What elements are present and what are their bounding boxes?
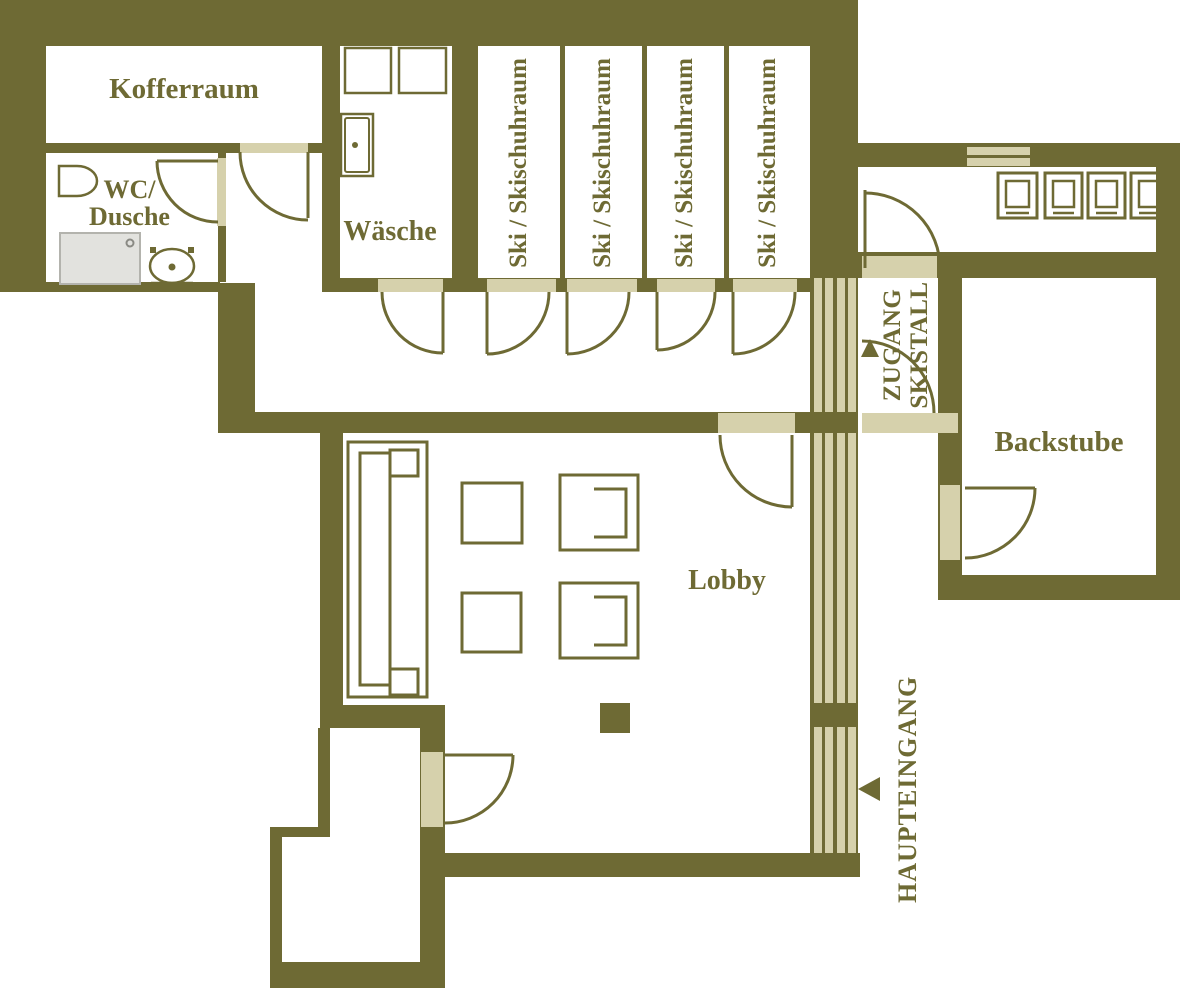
wall-ski-divider-1 — [560, 46, 565, 278]
sofa-icon — [348, 442, 427, 697]
laundry-sink-icon — [341, 114, 373, 176]
coffee-table-icon — [462, 593, 521, 652]
door-smallroom — [445, 755, 513, 823]
label-waesche: Wäsche — [315, 217, 465, 246]
sill-waesche — [378, 279, 443, 292]
label-wc-line1: WC/ — [57, 176, 202, 203]
sill-smallroom — [421, 752, 443, 827]
window-icon — [967, 158, 1030, 166]
door-ski-1 — [487, 292, 549, 354]
label-backstube: Backstube — [959, 427, 1159, 457]
sill-backstube — [940, 485, 960, 560]
wall-ski-divider-3 — [724, 46, 729, 278]
glass-front-mullion — [810, 703, 858, 727]
wall-right-column-top — [810, 0, 858, 278]
label-wc-dusche: WC/ Dusche — [57, 176, 202, 230]
washing-machine-icon — [345, 48, 391, 93]
wall-smallroom-step — [270, 827, 328, 837]
floor-plan: Kofferraum WC/ Dusche Wäsche Ski / Skisc… — [0, 0, 1200, 988]
sill-kofferraum — [240, 143, 308, 153]
wall-ski-divider-2 — [642, 46, 647, 278]
wall-backstube-bottom — [938, 575, 1180, 600]
sill-lobby-door — [718, 413, 795, 433]
label-kofferraum: Kofferraum — [59, 74, 309, 104]
wall-smallroom-bottom — [270, 962, 445, 988]
label-ski-room-4: Ski / Skischuhraum — [753, 45, 783, 281]
coffee-table-icon — [462, 483, 522, 543]
window-icon — [967, 147, 1030, 155]
label-ski-room-2: Ski / Skischuhraum — [588, 45, 618, 281]
left-arrow-icon — [858, 777, 880, 801]
glass-front-mullion — [810, 412, 858, 433]
shower-icon — [60, 233, 140, 284]
label-zugang-skistall: ZUGANG SKISTALL — [879, 270, 933, 420]
door-kofferraum — [240, 152, 308, 220]
washing-machine-icon — [399, 48, 446, 93]
label-zugang-line2: SKISTALL — [906, 270, 933, 420]
door-ski-2 — [567, 292, 629, 354]
door-ski-4 — [733, 292, 795, 354]
door-ski-3 — [657, 292, 715, 350]
oven-icon — [1045, 173, 1082, 218]
label-haupteingang: HAUPTEINGANG — [894, 683, 922, 903]
wall-left-outer — [0, 0, 46, 292]
wall-lobby-bottom — [445, 853, 860, 877]
wall-corridor-left — [218, 283, 255, 433]
wall-top-band — [0, 0, 845, 46]
wall-lobby-left — [320, 433, 343, 705]
toilet-icon — [150, 247, 194, 283]
wall-smallroom-right — [420, 705, 445, 985]
door-lobby — [720, 435, 792, 507]
wall-waesche-left — [322, 46, 340, 283]
wall-smallroom-left-upper — [318, 728, 330, 837]
label-wc-line2: Dusche — [57, 203, 202, 230]
sill-wc — [217, 158, 226, 226]
armchair-icon — [560, 583, 638, 658]
backstube-corridor-fixtures — [998, 173, 1168, 218]
pillar-icon — [600, 703, 630, 733]
door-waesche — [382, 292, 443, 353]
armchair-icon — [560, 475, 638, 550]
label-lobby: Lobby — [657, 566, 797, 595]
oven-icon — [998, 173, 1037, 218]
label-ski-room-3: Ski / Skischuhraum — [670, 45, 700, 281]
lobby-furniture — [348, 442, 638, 733]
label-zugang-line1: ZUGANG — [879, 270, 906, 420]
oven-icon — [1088, 173, 1125, 218]
door-backstube — [965, 488, 1035, 558]
waesche-fixtures — [341, 48, 446, 176]
label-ski-room-1: Ski / Skischuhraum — [504, 45, 534, 281]
